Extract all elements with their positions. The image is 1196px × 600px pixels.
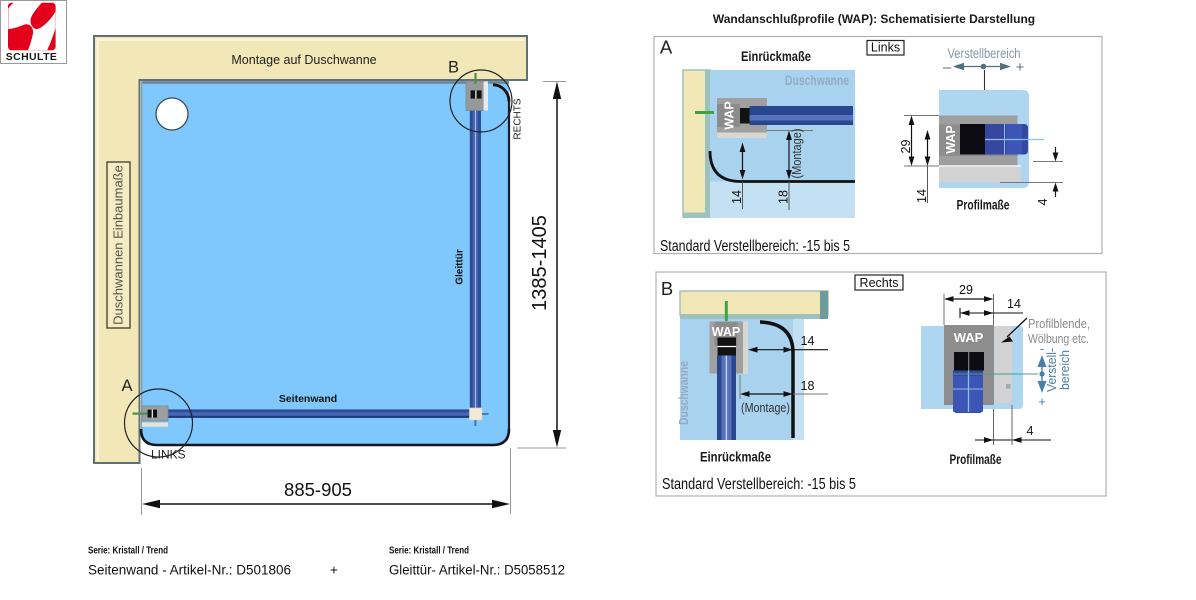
svg-text:Rechts: Rechts xyxy=(860,276,899,290)
svg-text:Serie: Kristall / Trend: Serie: Kristall / Trend xyxy=(389,545,469,557)
svg-text:B: B xyxy=(661,278,673,299)
svg-text:+: + xyxy=(1038,394,1046,409)
svg-text:LINKS: LINKS xyxy=(151,448,186,462)
svg-text:Seitenwand - Artikel-Nr.: D50: Seitenwand - Artikel-Nr.: D501806 xyxy=(88,563,291,578)
svg-text:885-905: 885-905 xyxy=(284,479,352,500)
svg-text:Gleittür: Gleittür xyxy=(455,249,466,285)
svg-text:Duschwanne: Duschwanne xyxy=(785,73,849,88)
svg-text:(Montage): (Montage) xyxy=(790,129,804,179)
svg-text:18: 18 xyxy=(777,190,791,204)
svg-text:Serie: Kristall / Trend: Serie: Kristall / Trend xyxy=(88,545,168,557)
svg-text:1385-1405: 1385-1405 xyxy=(529,215,551,311)
svg-text:A: A xyxy=(121,377,132,395)
svg-text:Standard Verstellbereich: -15: Standard Verstellbereich: -15 bis 5 xyxy=(660,238,850,255)
svg-text:14: 14 xyxy=(1007,297,1021,311)
svg-text:Wölbung etc.: Wölbung etc. xyxy=(1028,331,1089,346)
svg-text:Verstellbereich: Verstellbereich xyxy=(948,46,1021,61)
svg-text:29: 29 xyxy=(899,140,913,154)
svg-text:bereich: bereich xyxy=(1058,350,1072,390)
svg-text:-: - xyxy=(1040,341,1044,356)
svg-text:WAP: WAP xyxy=(954,330,984,345)
svg-text:(Montage): (Montage) xyxy=(741,401,790,415)
svg-text:Duschwannen Einbaumaße: Duschwannen Einbaumaße xyxy=(111,165,126,325)
svg-text:SCHULTE: SCHULTE xyxy=(6,51,58,63)
svg-text:Gleittür- Artikel-Nr.: D50585: Gleittür- Artikel-Nr.: D5058512 xyxy=(389,563,565,578)
svg-text:Standard Verstellbereich: -15: Standard Verstellbereich: -15 bis 5 xyxy=(662,476,856,493)
svg-text:Profilmaße: Profilmaße xyxy=(957,198,1010,213)
svg-text:Verstell-: Verstell- xyxy=(1045,348,1059,392)
svg-text:Seitenwand: Seitenwand xyxy=(279,393,337,405)
svg-text:RECHTS: RECHTS xyxy=(513,98,524,139)
svg-text:Duschwanne: Duschwanne xyxy=(676,361,691,425)
svg-text:14: 14 xyxy=(915,189,929,203)
svg-text:+: + xyxy=(1016,59,1025,76)
svg-text:+: + xyxy=(330,563,338,578)
svg-text:29: 29 xyxy=(959,283,973,297)
svg-text:4: 4 xyxy=(1036,198,1050,205)
svg-text:WAP: WAP xyxy=(944,125,958,153)
svg-text:14: 14 xyxy=(801,334,815,348)
svg-text:Einrückmaße: Einrückmaße xyxy=(700,450,771,465)
svg-text:Links: Links xyxy=(871,41,900,55)
svg-text:Einrückmaße: Einrückmaße xyxy=(741,49,811,64)
svg-text:18: 18 xyxy=(801,379,815,393)
svg-text:4: 4 xyxy=(1027,424,1034,438)
svg-text:Wandanschlußprofile (WAP): Sch: Wandanschlußprofile (WAP): Schematisiert… xyxy=(713,12,1035,26)
svg-text:Profilmaße: Profilmaße xyxy=(950,452,1002,467)
svg-text:–: – xyxy=(943,59,952,76)
svg-text:WAP: WAP xyxy=(723,101,737,129)
svg-text:A: A xyxy=(660,37,673,58)
svg-text:B: B xyxy=(448,59,459,77)
svg-text:14: 14 xyxy=(730,190,744,204)
svg-text:Montage auf Duschwanne: Montage auf Duschwanne xyxy=(231,53,376,67)
svg-text:Profilblende,: Profilblende, xyxy=(1028,316,1090,331)
svg-text:WAP: WAP xyxy=(712,325,740,339)
